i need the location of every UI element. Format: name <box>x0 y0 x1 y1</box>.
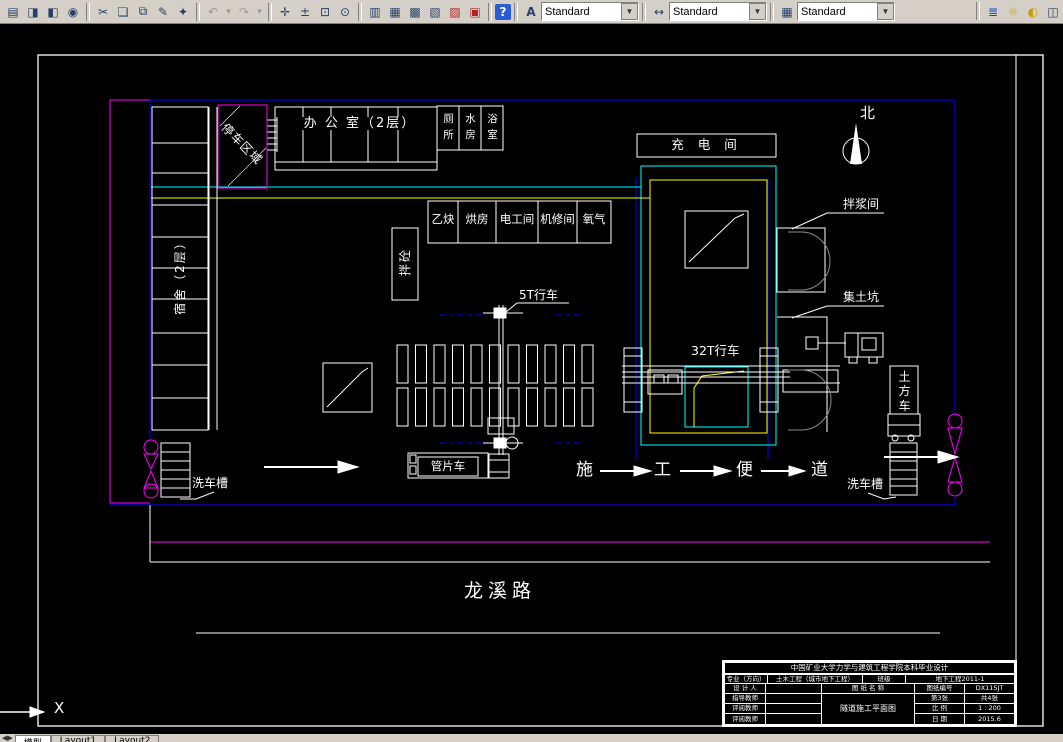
chevron-down-icon[interactable]: ▼ <box>621 3 638 20</box>
sheet-set-icon[interactable]: ▧ <box>425 2 445 22</box>
road-char-1: 施 <box>576 462 593 479</box>
undo-dropdown-icon[interactable]: ▾ <box>223 2 234 22</box>
shield-trolley-upper <box>685 211 748 268</box>
toolbar-separator <box>770 3 774 21</box>
tab-layout2[interactable]: Layout2 <box>105 735 159 742</box>
block-editor-icon[interactable]: ✦ <box>173 2 193 22</box>
slurry-room-label: 拌浆间 <box>843 198 879 210</box>
repair-room-label: 机修间 <box>538 214 577 226</box>
toolbar-separator <box>514 3 518 21</box>
undo-icon[interactable]: ↶ <box>203 2 223 22</box>
dorm-label: 宿舍（2层） <box>174 220 186 330</box>
match-properties-icon[interactable]: ✎ <box>153 2 173 22</box>
electrician-room-label: 电工间 <box>496 214 538 226</box>
segment-truck-label: 管片车 <box>419 461 477 473</box>
reviewer2-label: 评阅教师 <box>724 713 766 725</box>
zoom-previous-icon[interactable]: ⊙ <box>335 2 355 22</box>
zoom-realtime-icon[interactable]: ± <box>295 2 315 22</box>
ucs-x-label: X <box>54 701 64 716</box>
web-icon[interactable]: ◉ <box>63 2 83 22</box>
toilet-label: 厕所 <box>442 112 455 144</box>
toolbar-separator <box>196 3 200 21</box>
road-char-2: 工 <box>654 462 671 479</box>
dim-style-icon[interactable]: ↔ <box>649 2 669 22</box>
tab-nav-icons[interactable]: ◀▶ <box>0 734 15 742</box>
sun-icon[interactable]: ◐ <box>1023 2 1043 22</box>
date-value: 2015.6 <box>964 713 1015 725</box>
street-name-label: 龙溪路 <box>464 582 536 601</box>
xref-icon[interactable]: ◫ <box>1043 2 1063 22</box>
road-lines <box>150 505 990 633</box>
bath-room-label: 浴室 <box>486 112 499 144</box>
mixing-label: 拌砼 <box>399 232 411 292</box>
toolbar-separator <box>976 2 980 20</box>
dim-style-value: Standard <box>670 6 749 18</box>
toolbar-separator <box>358 3 362 21</box>
table-style-icon[interactable]: ▦ <box>777 2 797 22</box>
title-block-header: 中国矿业大学力学与建筑工程学院本科毕业设计 <box>724 662 1015 674</box>
wash-trough-right-label: 洗车槽 <box>847 478 883 490</box>
container-box <box>323 363 372 412</box>
toolbar-separator <box>488 3 492 21</box>
tool-palettes-icon[interactable]: ▩ <box>405 2 425 22</box>
text-style-value: Standard <box>542 6 621 18</box>
earth-truck-label: 土方车 <box>897 370 912 413</box>
cut-icon[interactable]: ✂ <box>93 2 113 22</box>
markup-icon[interactable]: ▨ <box>445 2 465 22</box>
autocad-window: 停车区域 宿舍（2层） 办 公 室（2层） 厕所 水房 浴室 乙炔 烘房 电工间… <box>0 0 1063 742</box>
layout-tab-strip: ◀▶ 模型 Layout1 Layout2 <box>0 734 1063 742</box>
layers-icon[interactable]: ≣ <box>983 2 1003 22</box>
text-style-icon[interactable]: A <box>521 2 541 22</box>
charging-room-label: 充 电 间 <box>640 139 773 152</box>
title-block: 中国矿业大学力学与建筑工程学院本科毕业设计 专业（方向） 土木工程（城市地下工程… <box>722 660 1017 727</box>
road-char-3: 便 <box>736 462 753 479</box>
wash-trough-left-label: 洗车槽 <box>192 477 228 489</box>
design-center-icon[interactable]: ▦ <box>385 2 405 22</box>
redo-dropdown-icon[interactable]: ▾ <box>254 2 265 22</box>
plot-icon[interactable]: ▤ <box>3 2 23 22</box>
lightbulb-icon[interactable]: ☼ <box>1003 2 1023 22</box>
crane-5t-label: 5T行车 <box>519 289 558 301</box>
standard-toolbar: ▤ ◨ ◧ ◉ ✂ ❏ ⧉ ✎ ✦ ↶ ▾ ↷ ▾ ✛ ± ⊡ ⊙ ▥ ▦ ▩ … <box>0 0 1063 24</box>
chevron-down-icon[interactable]: ▼ <box>749 3 766 20</box>
date-label: 日 期 <box>914 713 965 725</box>
site-gates <box>144 414 962 498</box>
publish-icon[interactable]: ◧ <box>43 2 63 22</box>
toolbar-separator <box>268 3 272 21</box>
tab-layout1[interactable]: Layout1 <box>51 735 105 742</box>
office-label: 办 公 室（2层） <box>287 117 433 130</box>
north-arrow-icon <box>843 123 869 164</box>
north-label: 北 <box>860 106 875 121</box>
tab-model[interactable]: 模型 <box>15 735 51 742</box>
excavator <box>845 333 883 363</box>
zoom-window-icon[interactable]: ⊡ <box>315 2 335 22</box>
toolbar-separator <box>86 3 90 21</box>
redo-icon[interactable]: ↷ <box>234 2 254 22</box>
toolbar-separator <box>642 3 646 21</box>
pan-icon[interactable]: ✛ <box>275 2 295 22</box>
drawing-name-value: 隧道施工平面图 <box>821 693 915 725</box>
toolbar-right-group: ≣ ☼ ◐ ◫ <box>973 2 1063 22</box>
plot-preview-icon[interactable]: ◨ <box>23 2 43 22</box>
drawing-frame <box>38 55 1043 726</box>
acetylene-label: 乙炔 <box>428 214 458 226</box>
oxygen-label: 氧气 <box>577 214 611 226</box>
calculator-icon[interactable]: ▣ <box>465 2 485 22</box>
site-boundary-magenta <box>110 100 150 503</box>
dim-style-combobox[interactable]: Standard ▼ <box>669 2 767 21</box>
soil-pit-label: 集土坑 <box>843 291 879 303</box>
water-room-label: 水房 <box>464 112 477 144</box>
help-icon[interactable]: ? <box>495 4 511 20</box>
segment-racks <box>397 345 593 426</box>
crane-32t-label: 32T行车 <box>691 345 740 358</box>
text-style-combobox[interactable]: Standard ▼ <box>541 2 639 21</box>
table-style-combobox[interactable]: Standard ▼ <box>797 2 895 21</box>
paste-icon[interactable]: ⧉ <box>133 2 153 22</box>
table-style-value: Standard <box>798 6 877 18</box>
reviewer2-value <box>765 713 822 725</box>
flow-arrows <box>264 451 958 476</box>
chevron-down-icon[interactable]: ▼ <box>877 3 894 20</box>
copy-icon[interactable]: ❏ <box>113 2 133 22</box>
drying-room-label: 烘房 <box>458 214 496 226</box>
properties-icon[interactable]: ▥ <box>365 2 385 22</box>
road-char-4: 道 <box>811 462 828 479</box>
